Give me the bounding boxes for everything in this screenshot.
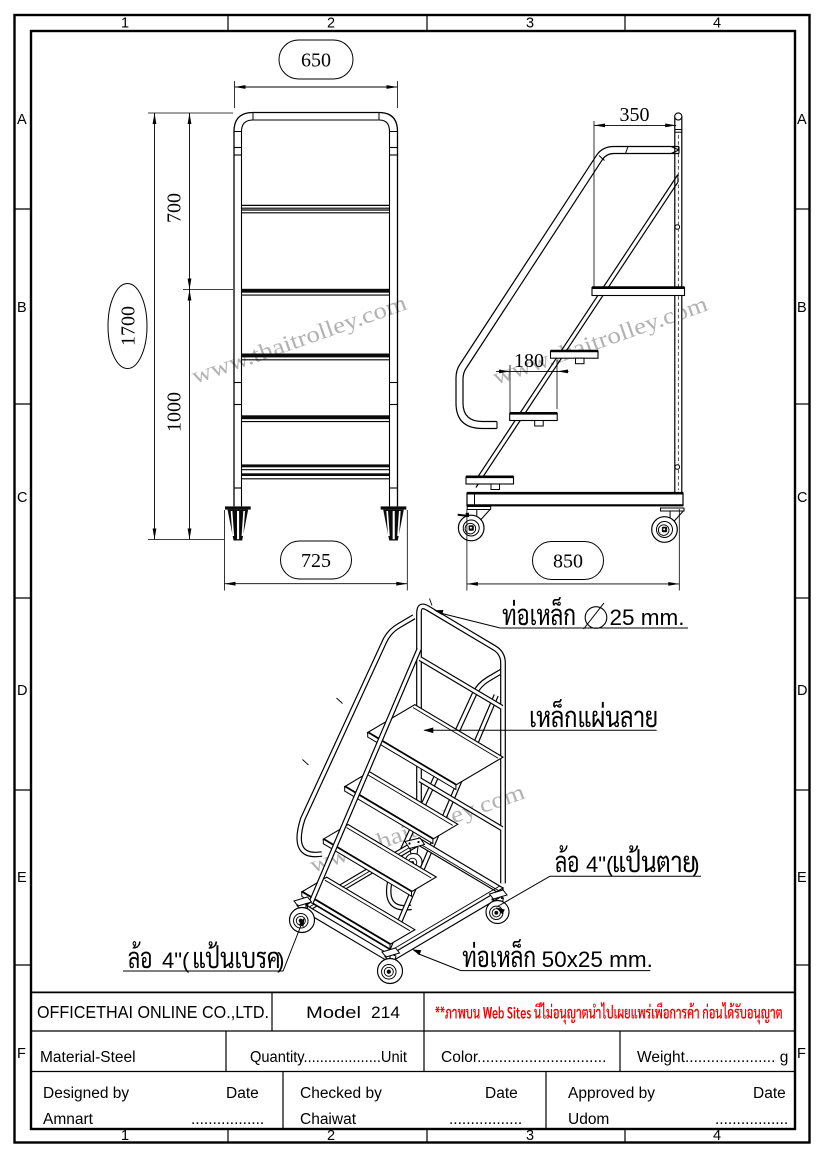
svg-text:E: E — [17, 870, 27, 886]
svg-text:4"(: 4"( — [162, 948, 190, 973]
svg-text:214: 214 — [371, 1003, 400, 1022]
svg-text:Udom: Udom — [568, 1111, 609, 1128]
svg-text:): ) — [692, 852, 699, 877]
svg-text:1700: 1700 — [118, 306, 140, 346]
svg-text:1: 1 — [121, 16, 129, 32]
svg-text:Model: Model — [306, 1003, 361, 1022]
svg-text:1000: 1000 — [164, 392, 186, 432]
svg-text:650: 650 — [301, 50, 331, 72]
svg-text:Weight..................... g: Weight..................... g — [637, 1049, 788, 1066]
svg-text:Designed by: Designed by — [43, 1085, 129, 1102]
svg-text:Date: Date — [226, 1085, 259, 1102]
svg-text:E: E — [797, 870, 807, 886]
svg-text:4"(: 4"( — [586, 852, 614, 877]
svg-text:725: 725 — [301, 550, 331, 572]
svg-text:2: 2 — [327, 16, 335, 32]
svg-text:Chaiwat: Chaiwat — [300, 1111, 357, 1128]
svg-text:D: D — [17, 683, 27, 699]
svg-text:Approved by: Approved by — [568, 1085, 655, 1102]
svg-text:Quantity...................Uni: Quantity...................Unit — [250, 1049, 408, 1066]
svg-text:B: B — [17, 300, 27, 316]
svg-text:Date: Date — [753, 1085, 786, 1102]
svg-text:OFFICETHAI ONLINE CO.,LTD.: OFFICETHAI ONLINE CO.,LTD. — [37, 1002, 269, 1022]
svg-text:Material-Steel: Material-Steel — [40, 1049, 136, 1066]
svg-text:F: F — [797, 1046, 806, 1062]
svg-text:4: 4 — [713, 16, 721, 32]
svg-text:850: 850 — [553, 551, 583, 573]
svg-text:C: C — [17, 490, 27, 506]
svg-text:4: 4 — [713, 1128, 721, 1144]
svg-text:.................: ................. — [715, 1111, 788, 1128]
svg-text:B: B — [797, 300, 807, 316]
svg-text:Checked by: Checked by — [300, 1085, 382, 1102]
svg-text:A: A — [797, 112, 807, 128]
svg-text:D: D — [797, 683, 807, 699]
svg-text:3: 3 — [526, 1128, 534, 1144]
svg-text:180: 180 — [514, 350, 544, 372]
svg-text:F: F — [17, 1046, 26, 1062]
svg-text:.................: ................. — [191, 1111, 264, 1128]
svg-text:Amnart: Amnart — [43, 1111, 94, 1128]
svg-text:350: 350 — [620, 104, 650, 126]
svg-text:C: C — [797, 490, 807, 506]
svg-text:2: 2 — [327, 1128, 335, 1144]
svg-text:1: 1 — [121, 1128, 129, 1144]
svg-text:A: A — [17, 112, 27, 128]
svg-text:Date: Date — [485, 1085, 518, 1102]
svg-text:50x25 mm.: 50x25 mm. — [542, 947, 653, 972]
svg-text:Color.........................: Color.............................. — [441, 1049, 606, 1066]
svg-text:25 mm.: 25 mm. — [610, 605, 685, 630]
svg-text:.................: ................. — [449, 1111, 522, 1128]
svg-text:3: 3 — [526, 16, 534, 32]
svg-text:700: 700 — [164, 193, 186, 223]
